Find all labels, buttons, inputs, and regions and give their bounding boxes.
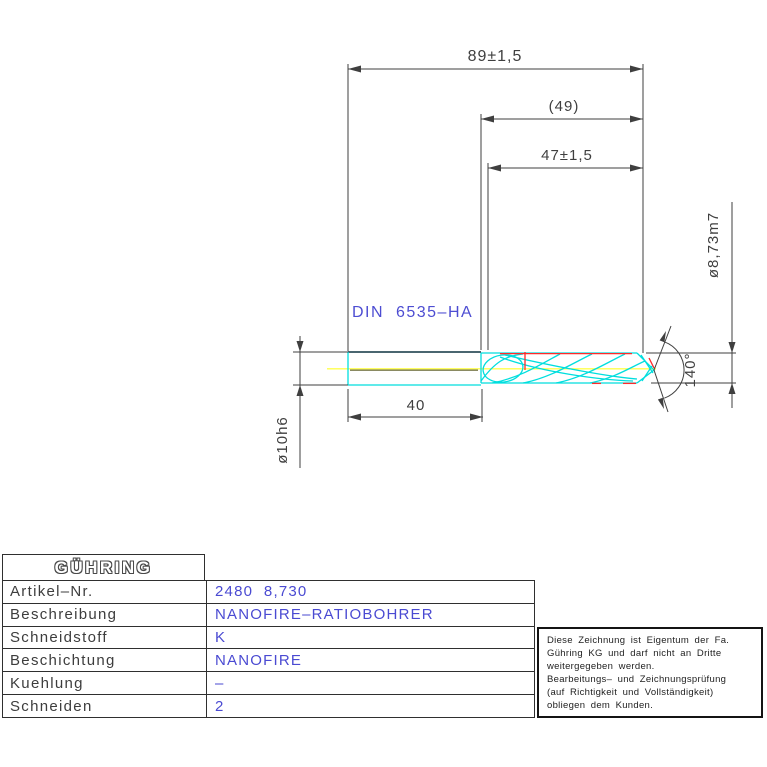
dim-shank-length-label: 40 [407,397,426,414]
dim-flute-length-label: 47±1,5 [541,147,593,164]
row-value: NANOFIRE [207,649,534,671]
row-label: Schneidstoff [3,627,207,649]
row-value: NANOFIRE–RATIOBOHRER [207,604,534,626]
ownership-note: Diese Zeichnung ist Eigentum der Fa. Güh… [537,627,763,718]
dim-point-angle: 140° [654,326,699,412]
table-row-beschichtung: Beschichtung NANOFIRE [3,648,534,671]
dim-cutting-diameter-label: ø8,73m7 [705,212,722,278]
dim-overall-length-label: 89±1,5 [468,48,523,65]
row-value: K [207,627,534,649]
row-label: Artikel–Nr. [3,581,207,603]
note-line: Gühring KG und darf nicht an Dritte [547,647,757,660]
table-row-kuehlung: Kuehlung – [3,671,534,694]
table-row-schneidstoff: Schneidstoff K [3,626,534,649]
dim-shank-diameter: ø10h6 [274,336,348,468]
drawing-sheet: 89±1,5 (49) 47±1,5 40 [0,0,767,767]
din-standard-label: DIN 6535–HA [352,304,473,321]
guehring-logo: GÜHRING [55,558,153,578]
technical-drawing: 89±1,5 (49) 47±1,5 40 [0,0,767,545]
title-block-table: Artikel–Nr. 2480 8,730 Beschreibung NANO… [2,580,535,718]
table-row-artikel-nr: Artikel–Nr. 2480 8,730 [3,581,534,603]
row-label: Kuehlung [3,672,207,694]
dim-flute-length-ref-label: (49) [549,98,580,115]
dim-flute-length-ref: (49) [481,98,643,350]
note-line: Diese Zeichnung ist Eigentum der Fa. [547,634,757,647]
row-label: Schneiden [3,695,207,717]
dim-shank-length: 40 [348,389,483,422]
table-row-beschreibung: Beschreibung NANOFIRE–RATIOBOHRER [3,603,534,626]
table-row-schneiden: Schneiden 2 [3,694,534,717]
dim-flute-length: 47±1,5 [488,147,643,350]
row-label: Beschreibung [3,604,207,626]
note-line: (auf Richtigkeit und Vollständigkeit) [547,686,757,699]
row-value: – [207,672,534,694]
row-label: Beschichtung [3,649,207,671]
note-line: weitergegeben werden. [547,660,757,673]
note-line: obliegen dem Kunden. [547,699,757,712]
row-value: 2 [207,695,534,717]
dim-shank-diameter-label: ø10h6 [274,416,291,464]
note-line: Bearbeitungs– und Zeichnungsprüfung [547,673,757,686]
row-value: 2480 8,730 [207,581,534,603]
dim-point-angle-label: 140° [682,352,699,387]
logo-box: GÜHRING [2,554,205,581]
